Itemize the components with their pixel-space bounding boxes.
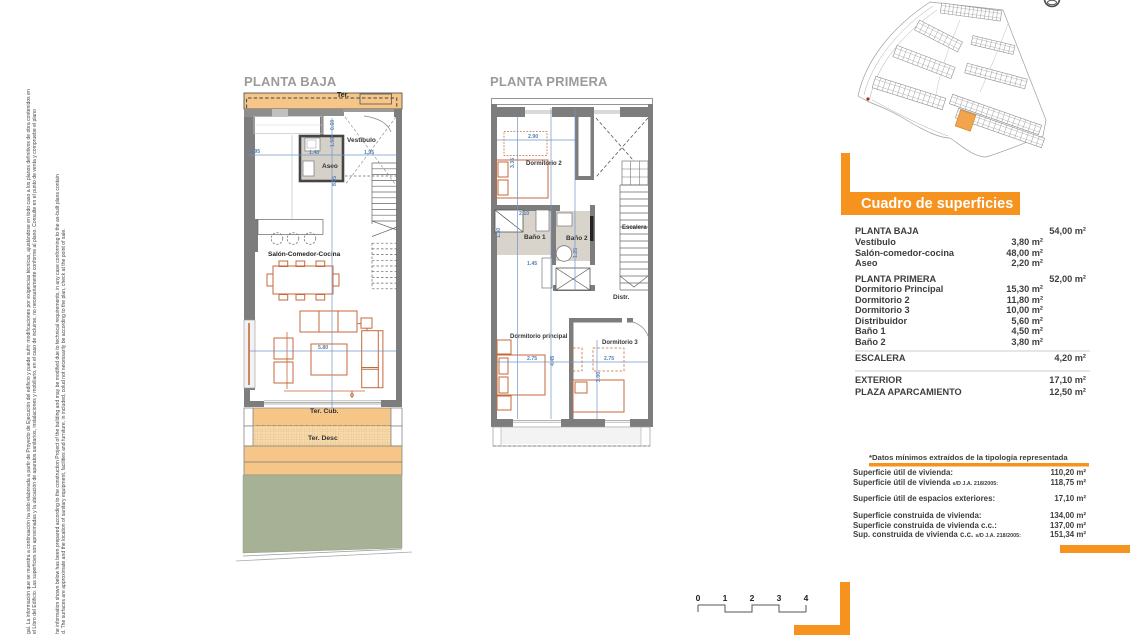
svg-text:Vestíbulo: Vestíbulo bbox=[347, 137, 376, 144]
svg-text:Baño 2: Baño 2 bbox=[566, 235, 588, 242]
svg-text:3.35: 3.35 bbox=[510, 158, 516, 168]
svg-text:Escalera: Escalera bbox=[622, 225, 647, 231]
svg-text:3.00: 3.00 bbox=[596, 372, 602, 382]
svg-text:2.75: 2.75 bbox=[527, 356, 537, 362]
svg-text:1: 1 bbox=[723, 593, 728, 603]
svg-text:1.40: 1.40 bbox=[309, 150, 319, 156]
svg-text:Dormitorio 3: Dormitorio 3 bbox=[602, 340, 638, 346]
svg-text:1.30: 1.30 bbox=[496, 228, 502, 238]
svg-text:Distr.: Distr. bbox=[613, 294, 629, 301]
svg-text:0.60: 0.60 bbox=[330, 120, 336, 130]
svg-text:Dormitorio principal: Dormitorio principal bbox=[510, 334, 568, 340]
svg-text:Ter. Cub.: Ter. Cub. bbox=[310, 408, 339, 415]
svg-text:5.80: 5.80 bbox=[318, 345, 328, 351]
svg-text:Ter. Desc: Ter. Desc bbox=[308, 435, 338, 442]
svg-text:2.10: 2.10 bbox=[519, 211, 529, 217]
svg-text:3: 3 bbox=[777, 593, 782, 603]
svg-text:Aseo: Aseo bbox=[322, 163, 338, 170]
svg-text:1.95: 1.95 bbox=[364, 150, 374, 156]
svg-text:Baño 1: Baño 1 bbox=[524, 234, 546, 241]
svg-text:Ter.: Ter. bbox=[337, 92, 349, 99]
svg-text:8.05: 8.05 bbox=[332, 176, 338, 186]
svg-text:4.45: 4.45 bbox=[550, 356, 556, 366]
svg-text:4: 4 bbox=[804, 593, 809, 603]
svg-text:1.95: 1.95 bbox=[250, 149, 260, 155]
svg-text:1.50: 1.50 bbox=[330, 137, 336, 147]
svg-text:2: 2 bbox=[750, 593, 755, 603]
svg-text:Salón-Comedor-Cocina: Salón-Comedor-Cocina bbox=[268, 251, 341, 258]
svg-text:1.45: 1.45 bbox=[527, 261, 537, 267]
svg-text:2.75: 2.75 bbox=[604, 356, 614, 362]
svg-text:2.90: 2.90 bbox=[528, 134, 538, 140]
svg-text:0: 0 bbox=[696, 593, 701, 603]
svg-text:1.25: 1.25 bbox=[573, 248, 579, 258]
svg-text:Dormitorio 2: Dormitorio 2 bbox=[526, 161, 562, 167]
